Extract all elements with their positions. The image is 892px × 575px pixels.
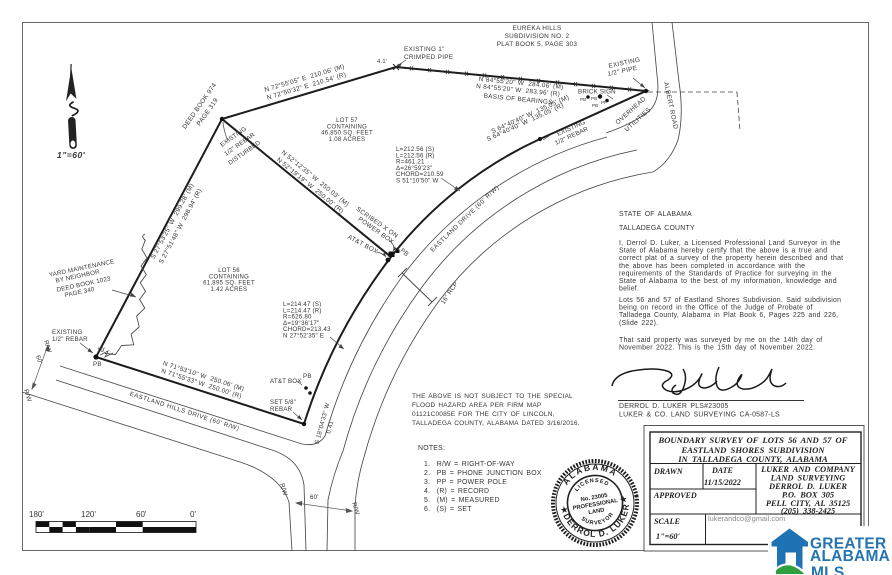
svg-text:ALABAMA: ALABAMA (810, 548, 890, 565)
svg-text:PP: PP (601, 100, 607, 105)
svg-text:1"=60': 1"=60' (656, 532, 680, 541)
svg-text:(Slide 222).: (Slide 222). (619, 320, 658, 327)
svg-text:CRIMPED PIPE: CRIMPED PIPE (404, 54, 453, 61)
svg-text:CONTAINING: CONTAINING (327, 124, 367, 130)
svg-text:(205) 338-2425: (205) 338-2425 (781, 507, 835, 516)
svg-text:NOTES:: NOTES: (418, 445, 445, 452)
svg-text:EUREKA HILLS: EUREKA HILLS (512, 25, 561, 32)
svg-text:46,850 SQ. FEET: 46,850 SQ. FEET (321, 131, 373, 137)
svg-text:0': 0' (190, 510, 196, 519)
svg-text:lukerandco@gmail.com: lukerandco@gmail.com (708, 514, 785, 523)
svg-text:SET 5/8": SET 5/8" (270, 399, 296, 406)
svg-text:R/W: R/W (350, 501, 361, 515)
svg-text:1.42 ACRES: 1.42 ACRES (211, 287, 248, 293)
svg-text:1"=60': 1"=60' (57, 150, 86, 160)
svg-text:EXISTING 1": EXISTING 1" (404, 46, 445, 53)
svg-text:120': 120' (81, 510, 96, 519)
svg-text:DRAWN: DRAWN (653, 467, 684, 476)
svg-text:PB: PB (303, 373, 312, 380)
svg-text:LOT 57: LOT 57 (336, 118, 358, 124)
svg-text:11/15/2022: 11/15/2022 (704, 478, 741, 487)
svg-text:6. (S) = SET: 6. (S) = SET (424, 506, 472, 513)
svg-text:4.1': 4.1' (377, 59, 387, 65)
svg-text:EASTLAND DRIVE (60' R/W): EASTLAND DRIVE (60' R/W) (429, 184, 501, 254)
svg-text:requirements of the Standards: requirements of the Standards of Practic… (619, 270, 832, 277)
svg-text:That said property was surveye: That said property was surveyed by me on… (619, 337, 822, 344)
svg-text:5. (M) = MEASURED: 5. (M) = MEASURED (424, 497, 500, 504)
svg-text:60': 60' (34, 354, 43, 364)
svg-text:0.41': 0.41' (325, 419, 335, 435)
svg-text:01121C0085E FOR THE CITY OF LI: 01121C0085E FOR THE CITY OF LINCOLN, (412, 411, 555, 418)
svg-text:IN TALLADEGA COUNTY, ALABAMA: IN TALLADEGA COUNTY, ALABAMA (677, 454, 828, 464)
svg-text:4. (R) = RECORD: 4. (R) = RECORD (424, 488, 489, 495)
svg-text:★: ★ (619, 494, 628, 504)
svg-text:TALLADEGA COUNTY, ALABAMA DATE: TALLADEGA COUNTY, ALABAMA DATED 3/16/201… (412, 420, 580, 427)
svg-text:AT&T BOX: AT&T BOX (270, 378, 302, 385)
svg-text:I, Derrol D. Luker, a Licensed: I, Derrol D. Luker, a Licensed Professio… (619, 240, 841, 247)
svg-text:REBAR: REBAR (270, 406, 293, 413)
svg-text:61,895 SQ. FEET: 61,895 SQ. FEET (203, 281, 255, 287)
svg-text:1. R/W = RIGHT-OF-WAY: 1. R/W = RIGHT-OF-WAY (424, 461, 515, 468)
svg-text:60': 60' (136, 510, 147, 519)
svg-text:2. PB = PHONE JUNCTION BOX: 2. PB = PHONE JUNCTION BOX (424, 470, 542, 477)
svg-text:S 64°40'40" W 135.05' (R): S 64°40'40" W 135.05' (R) (485, 101, 565, 143)
svg-text:FLOOD HAZARD AREA PER FIRM MAP: FLOOD HAZARD AREA PER FIRM MAP (412, 402, 541, 409)
svg-text:PB: PB (93, 361, 102, 368)
svg-text:being on record in the Office: being on record in the Office of the Jud… (619, 305, 813, 312)
svg-text:S 51°10'50" W: S 51°10'50" W (396, 178, 439, 185)
svg-text:180': 180' (29, 510, 44, 519)
svg-text:Lots 56 and 57 of Eastland Sho: Lots 56 and 57 of Eastland Shores Subdiv… (619, 297, 841, 304)
svg-text:correct plat of a survey of th: correct plat of a survey of the property… (619, 255, 843, 262)
svg-text:PLAT BOOK 5, PAGE 303: PLAT BOOK 5, PAGE 303 (497, 41, 578, 48)
svg-text:November 2022. This is the 15t: November 2022. This is the 15th day of N… (619, 345, 815, 352)
svg-text:16" RCP: 16" RCP (440, 281, 460, 306)
svg-text:SCALE: SCALE (654, 517, 680, 526)
svg-text:N 52°19'19" W 250.00' (R): N 52°19'19" W 250.00' (R) (275, 156, 345, 216)
svg-text:BRICK SIGN: BRICK SIGN (578, 89, 616, 96)
svg-text:R/W: R/W (278, 482, 289, 496)
svg-text:3. PP = POWER POLE: 3. PP = POWER POLE (424, 479, 507, 486)
svg-text:EXISTING: EXISTING (52, 329, 82, 336)
svg-text:PB: PB (580, 97, 586, 102)
svg-text:PB: PB (591, 96, 597, 101)
svg-text:60': 60' (310, 494, 319, 501)
svg-text:TALLADEGA COUNTY: TALLADEGA COUNTY (619, 225, 695, 232)
svg-text:LUKER & CO. LAND SURVEYING CA-: LUKER & CO. LAND SURVEYING CA-0587-LS (619, 412, 780, 419)
svg-text:State of Alabama hereby certif: State of Alabama hereby certify that the… (619, 248, 827, 255)
svg-text:R/W: R/W (22, 388, 33, 402)
svg-text:THE ABOVE IS NOT SUBJECT TO TH: THE ABOVE IS NOT SUBJECT TO THE SPECIAL (412, 393, 573, 400)
svg-text:BOUNDARY SURVEY OF LOTS 56 AND: BOUNDARY SURVEY OF LOTS 56 AND 57 OF (657, 435, 847, 445)
svg-text:DATE: DATE (711, 466, 733, 475)
svg-text:belief.: belief. (619, 286, 639, 293)
svg-text:1.08 ACRES: 1.08 ACRES (329, 137, 366, 143)
svg-text:N 27°52'35" E: N 27°52'35" E (283, 333, 324, 340)
svg-text:PB: PB (592, 103, 598, 108)
svg-text:LOT 56: LOT 56 (218, 268, 240, 274)
svg-text:the above has been completed i: the above has been completed in accordan… (619, 263, 805, 270)
svg-text:DERROL D. LUKER PLS#23005: DERROL D. LUKER PLS#23005 (619, 403, 729, 410)
svg-text:1/2" REBAR: 1/2" REBAR (52, 336, 88, 343)
svg-text:STATE OF ALABAMA: STATE OF ALABAMA (619, 211, 692, 218)
svg-text:Talladega County, Alabama in P: Talladega County, Alabama in Plat Book 6… (619, 312, 838, 319)
svg-text:CONTAINING: CONTAINING (209, 274, 249, 280)
svg-text:ALBERT ROAD: ALBERT ROAD (662, 81, 679, 130)
svg-text:PB: PB (399, 247, 410, 258)
svg-text:State of Alabama to the best o: State of Alabama to the best of my infor… (619, 278, 837, 285)
svg-text:MLS: MLS (811, 565, 844, 575)
svg-text:N 52°12'35" W 250.03' (M): N 52°12'35" W 250.03' (M) (280, 148, 351, 208)
svg-text:EASTLAND HILLS DRIVE (60' R/W): EASTLAND HILLS DRIVE (60' R/W) (129, 391, 240, 433)
svg-text:19': 19' (97, 347, 106, 354)
svg-text:APPROVED: APPROVED (653, 491, 697, 500)
svg-text:SUBDIVISION NO. 2: SUBDIVISION NO. 2 (505, 33, 570, 40)
